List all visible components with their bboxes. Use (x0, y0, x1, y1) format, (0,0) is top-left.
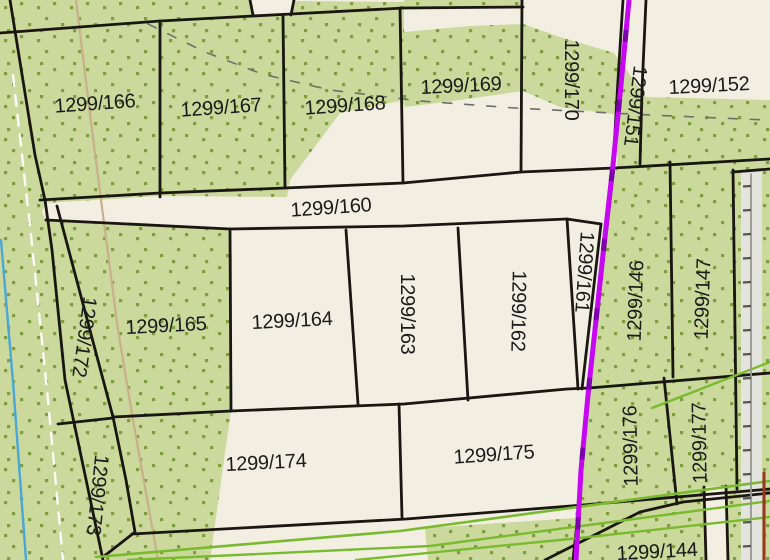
parcel-label-1299-164[interactable]: 1299/164 (251, 308, 333, 334)
fence-tick (743, 258, 751, 259)
fence-tick (743, 522, 751, 523)
parcel-label-1299-170[interactable]: 1299/170 (560, 39, 582, 120)
parcel-label-1299-147[interactable]: 1299/147 (691, 258, 716, 340)
parcel-label-1299-162[interactable]: 1299/162 (506, 270, 529, 352)
fence-tick (743, 306, 751, 307)
parcel-label-1299-165[interactable]: 1299/165 (125, 313, 207, 339)
boundary-167-168 (283, 16, 285, 188)
boundary-164-west (230, 229, 231, 411)
fence-tick (743, 450, 751, 451)
fence-tick (743, 210, 751, 211)
fence-tick (743, 426, 751, 427)
parcel-label-1299-146[interactable]: 1299/146 (624, 260, 649, 342)
parcel-label-1299-144[interactable]: 1299/144 (616, 539, 698, 560)
map-viewport[interactable]: 1299/1661299/1671299/1681299/1691299/170… (0, 0, 770, 560)
parcel-label-1299-163[interactable]: 1299/163 (396, 273, 418, 354)
fence-tick (743, 378, 751, 379)
fence-tick (743, 282, 751, 283)
parcel-label-1299-176[interactable]: 1299/176 (619, 405, 642, 487)
fence-tick (743, 186, 751, 187)
fence-tick (743, 330, 751, 331)
parcel-label-1299-152[interactable]: 1299/152 (668, 73, 750, 99)
cadastral-map: 1299/1661299/1671299/1681299/1691299/170… (0, 0, 770, 560)
fence-tick (743, 498, 751, 499)
fence-tick (743, 402, 751, 403)
fence-tick (743, 234, 751, 235)
boundary-169-170 (521, 0, 522, 172)
fence-tick (743, 546, 751, 547)
parcel-label-1299-177[interactable]: 1299/177 (688, 402, 711, 484)
fence-tick (743, 354, 751, 355)
parcel-label-1299-174[interactable]: 1299/174 (225, 450, 307, 476)
parcel-label-1299-169[interactable]: 1299/169 (420, 73, 502, 99)
fence-tick (743, 474, 751, 475)
